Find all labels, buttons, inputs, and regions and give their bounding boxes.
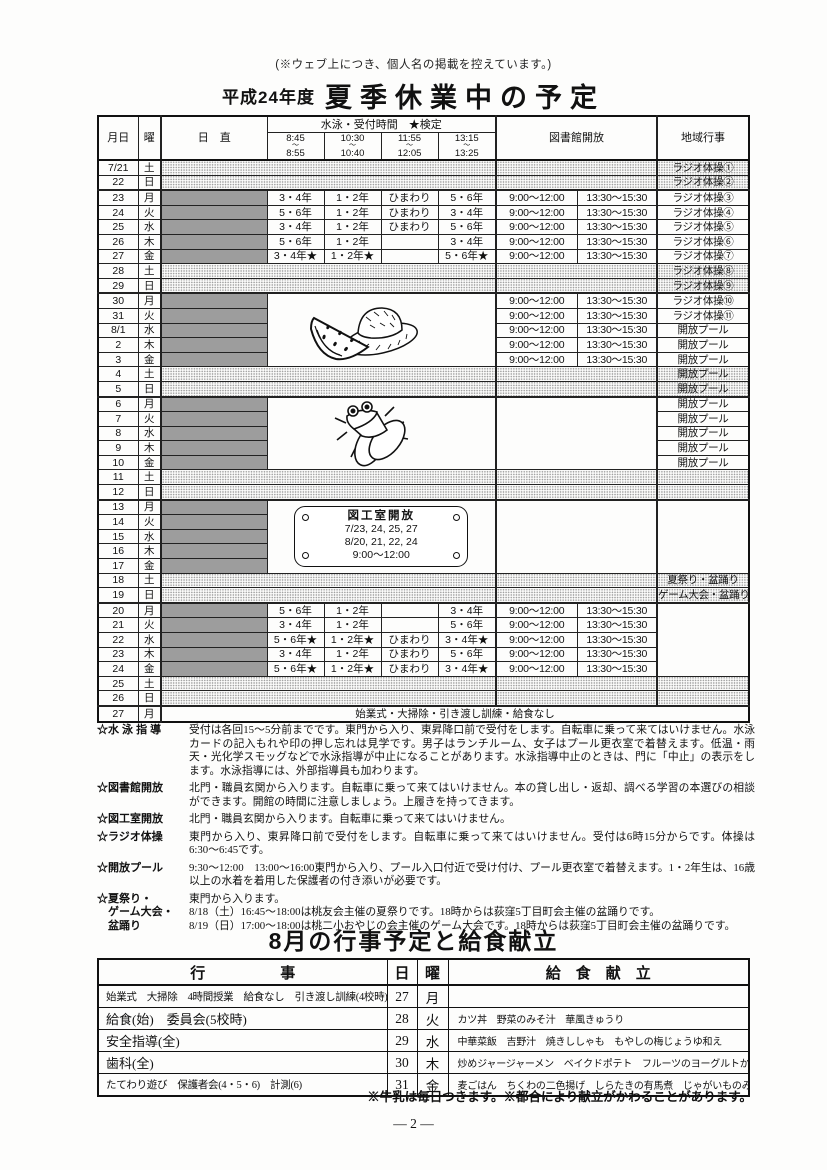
duty-teacher-cell-redacted	[161, 308, 267, 323]
weekend-closed-strip	[496, 175, 657, 190]
region-event-cell: ラジオ体操③	[657, 190, 749, 205]
library-afternoon-cell: 13:30〜15:30	[577, 293, 657, 308]
region-event-cell: ラジオ体操⑨	[657, 278, 749, 293]
day-of-week-cell: 木	[138, 441, 161, 456]
date-cell: 24	[98, 662, 138, 677]
weekend-closed-strip	[496, 381, 657, 396]
col-header-date: 月日	[98, 116, 138, 160]
library-morning-cell: 9:00〜12:00	[496, 647, 577, 662]
note-text: 東門から入り、東昇降口前で受付をします。自転車に乗って来てはいけません。受付は6…	[189, 831, 755, 858]
cicada-drawing	[332, 399, 420, 469]
date-cell: 18	[98, 573, 138, 588]
duty-teacher-cell-redacted	[161, 249, 267, 264]
weekend-closed-strip	[496, 160, 657, 175]
library-morning-cell: 9:00〜12:00	[496, 352, 577, 367]
illustration-cell: 図工室開放 7/23, 24, 25, 27 8/20, 21, 22, 24 …	[267, 500, 496, 573]
library-morning-cell: 9:00〜12:00	[496, 190, 577, 205]
day-of-week-cell: 木	[138, 234, 161, 249]
region-event-cell: 開放プール	[657, 338, 749, 353]
day-of-week-cell: 土	[138, 367, 161, 382]
weekend-closed-strip	[496, 485, 657, 500]
page-title: 平成24年度夏季休業中の予定	[0, 76, 827, 115]
note-text: 北門・職員玄関から入ります。自転車に乗って来てはいけません。本の貸し出し・返却、…	[189, 782, 755, 809]
library-morning-cell: 9:00〜12:00	[496, 220, 577, 235]
note-text: 受付は各回15〜5分前までです。東門から入り、東昇降口前で受付をします。自転車に…	[189, 724, 755, 778]
weekend-closed-strip	[161, 175, 496, 190]
day-of-week-cell: 火	[138, 205, 161, 220]
weekend-closed-strip	[161, 691, 496, 706]
aug-day-cell: 29	[387, 1030, 417, 1052]
library-morning-cell: 9:00〜12:00	[496, 662, 577, 677]
date-cell: 24	[98, 205, 138, 220]
swim-group-cell: ひまわり	[381, 662, 438, 677]
library-afternoon-cell: 13:30〜15:30	[577, 603, 657, 618]
day-of-week-cell: 木	[138, 338, 161, 353]
duty-teacher-cell-redacted	[161, 234, 267, 249]
aug-event-cell: 歯科(全)	[98, 1052, 387, 1074]
sign-line: 9:00〜12:00	[295, 549, 467, 562]
library-morning-cell: 9:00〜12:00	[496, 249, 577, 264]
aug-dow-cell: 月	[417, 985, 448, 1008]
august-events-menu-table: 行 事日曜給 食 献 立始業式 大掃除 4時間授業 給食なし 引き渡し訓練(4校…	[97, 958, 750, 1097]
duty-teacher-cell-redacted	[161, 352, 267, 367]
date-cell: 3	[98, 352, 138, 367]
swim-group-cell: 5・6年	[438, 190, 496, 205]
swim-group-cell: 1・2年	[324, 234, 381, 249]
day-of-week-cell: 金	[138, 249, 161, 264]
aug-col-header-menu: 給 食 献 立	[448, 959, 749, 985]
region-event-cell: 開放プール	[657, 412, 749, 427]
aug-col-header-dow: 曜	[417, 959, 448, 985]
region-event-cell: 開放プール	[657, 441, 749, 456]
summer-schedule-table: 月日曜日 直水泳・受付時間 ★検定図書館開放地域行事8:45〜8:5510:30…	[97, 115, 750, 723]
weekend-closed-strip	[161, 278, 496, 293]
weekend-closed-strip	[161, 381, 496, 396]
swim-group-cell: 1・2年	[324, 190, 381, 205]
full-day-note-cell: 始業式・大掃除・引き渡し訓練・給食なし	[161, 706, 749, 722]
library-afternoon-cell: 13:30〜15:30	[577, 234, 657, 249]
weekend-closed-strip	[496, 573, 657, 588]
swim-group-cell: 1・2年	[324, 647, 381, 662]
region-event-cell	[657, 470, 749, 485]
date-cell: 15	[98, 529, 138, 544]
duty-teacher-cell-redacted	[161, 397, 267, 412]
swim-group-cell: 1・2年	[324, 205, 381, 220]
aug-lunch-menu-cell	[448, 985, 749, 1008]
day-of-week-cell: 木	[138, 544, 161, 559]
swim-slot-time: 10:30〜10:40	[324, 133, 381, 161]
illustration-cell	[267, 293, 496, 366]
date-cell: 31	[98, 308, 138, 323]
duty-teacher-cell-redacted	[161, 529, 267, 544]
duty-teacher-cell-redacted	[161, 603, 267, 618]
date-cell: 25	[98, 220, 138, 235]
day-of-week-cell: 金	[138, 559, 161, 574]
date-cell: 30	[98, 293, 138, 308]
date-cell: 9	[98, 441, 138, 456]
library-afternoon-cell: 13:30〜15:30	[577, 205, 657, 220]
region-event-cell: 開放プール	[657, 352, 749, 367]
day-of-week-cell: 月	[138, 500, 161, 515]
duty-teacher-cell-redacted	[161, 338, 267, 353]
region-event-cell: ラジオ体操⑧	[657, 264, 749, 279]
note-item: ☆水 泳 指 導受付は各回15〜5分前までです。東門から入り、東昇降口前で受付を…	[97, 724, 755, 778]
day-of-week-cell: 土	[138, 470, 161, 485]
weekend-closed-strip	[496, 367, 657, 382]
swim-group-cell: 3・4年	[438, 603, 496, 618]
swim-group-cell: 3・4年	[267, 220, 324, 235]
date-cell: 6	[98, 397, 138, 412]
swim-group-cell: 3・4年	[438, 205, 496, 220]
duty-teacher-cell-redacted	[161, 618, 267, 633]
region-event-cell: 開放プール	[657, 426, 749, 441]
swim-group-cell: 1・2年★	[324, 662, 381, 677]
col-header-library: 図書館開放	[496, 116, 657, 160]
duty-teacher-cell-redacted	[161, 190, 267, 205]
region-event-cell: ラジオ体操⑤	[657, 220, 749, 235]
day-of-week-cell: 金	[138, 352, 161, 367]
region-event-cell	[657, 676, 749, 691]
day-of-week-cell: 日	[138, 691, 161, 706]
duty-teacher-cell-redacted	[161, 544, 267, 559]
date-cell: 19	[98, 588, 138, 603]
note-text: 9:30〜12:00 13:00〜16:00東門から入り、プール入口付近で受け付…	[189, 862, 755, 889]
swim-group-cell	[381, 234, 438, 249]
aug-col-header-day: 日	[387, 959, 417, 985]
date-cell: 17	[98, 559, 138, 574]
region-event-block	[657, 603, 749, 676]
aug-event-cell: 給食(始) 委員会(5校時)	[98, 1008, 387, 1030]
library-morning-cell: 9:00〜12:00	[496, 323, 577, 338]
aug-lunch-menu-cell: カツ丼 野菜のみそ汁 華風きゅうり	[448, 1008, 749, 1030]
date-cell: 26	[98, 234, 138, 249]
swim-group-cell: 3・4年★	[438, 662, 496, 677]
day-of-week-cell: 火	[138, 412, 161, 427]
weekend-closed-strip	[161, 160, 496, 175]
region-event-cell: ラジオ体操⑥	[657, 234, 749, 249]
aug-col-header-events: 行 事	[98, 959, 387, 985]
aug-dow-cell: 火	[417, 1008, 448, 1030]
swim-group-cell: ひまわり	[381, 220, 438, 235]
sign-line: 8/20, 21, 22, 24	[295, 536, 467, 549]
page-number: ― 2 ―	[0, 1116, 827, 1132]
weekend-closed-strip	[161, 676, 496, 691]
scanned-school-newsletter-page: (※ウェブ上につき、個人名の掲載を控えています。) 平成24年度夏季休業中の予定…	[0, 0, 827, 1170]
illustration-cell	[267, 397, 496, 470]
day-of-week-cell: 日	[138, 485, 161, 500]
region-event-cell: ゲーム大会・盆踊り	[657, 588, 749, 603]
swim-group-cell	[381, 603, 438, 618]
swim-group-cell: 3・4年★	[267, 249, 324, 264]
region-event-cell: 開放プール	[657, 397, 749, 412]
library-afternoon-cell: 13:30〜15:30	[577, 618, 657, 633]
date-cell: 11	[98, 470, 138, 485]
library-afternoon-cell: 13:30〜15:30	[577, 323, 657, 338]
col-header-duty: 日 直	[161, 116, 267, 160]
duty-teacher-cell-redacted	[161, 293, 267, 308]
date-cell: 13	[98, 500, 138, 515]
library-morning-cell: 9:00〜12:00	[496, 308, 577, 323]
library-closed-block	[496, 397, 657, 470]
day-of-week-cell: 土	[138, 160, 161, 175]
date-cell: 21	[98, 618, 138, 633]
swim-group-cell: 1・2年	[324, 618, 381, 633]
swim-group-cell: ひまわり	[381, 205, 438, 220]
swim-group-cell: 5・6年★	[438, 249, 496, 264]
day-of-week-cell: 火	[138, 618, 161, 633]
duty-teacher-cell-redacted	[161, 559, 267, 574]
day-of-week-cell: 水	[138, 323, 161, 338]
note-item: ☆ラジオ体操東門から入り、東昇降口前で受付をします。自転車に乗って来てはいけませ…	[97, 831, 755, 858]
duty-teacher-cell-redacted	[161, 515, 267, 530]
library-morning-cell: 9:00〜12:00	[496, 338, 577, 353]
duty-teacher-cell-redacted	[161, 455, 267, 470]
date-cell: 27	[98, 706, 138, 722]
weekend-closed-strip	[496, 264, 657, 279]
sign-line: 7/23, 24, 25, 27	[295, 523, 467, 536]
swim-group-cell: 5・6年★	[267, 662, 324, 677]
library-afternoon-cell: 13:30〜15:30	[577, 190, 657, 205]
library-morning-cell: 9:00〜12:00	[496, 603, 577, 618]
date-cell: 4	[98, 367, 138, 382]
weekend-closed-strip	[496, 278, 657, 293]
aug-lunch-menu-cell: 炒めジャージャーメン ベイクドポテト フルーツのヨーグルトかけ	[448, 1052, 749, 1074]
library-afternoon-cell: 13:30〜15:30	[577, 249, 657, 264]
date-cell: 8/1	[98, 323, 138, 338]
library-morning-cell: 9:00〜12:00	[496, 618, 577, 633]
swim-group-cell: 5・6年★	[267, 633, 324, 648]
note-item: ☆開放プール9:30〜12:00 13:00〜16:00東門から入り、プール入口…	[97, 862, 755, 889]
note-item: ☆図工室開放北門・職員玄関から入ります。自転車に乗って来てはいけません。	[97, 813, 755, 827]
aug-dow-cell: 水	[417, 1030, 448, 1052]
day-of-week-cell: 月	[138, 603, 161, 618]
date-cell: 27	[98, 249, 138, 264]
swim-group-cell: 3・4年	[267, 647, 324, 662]
date-cell: 26	[98, 691, 138, 706]
note-text: 北門・職員玄関から入ります。自転車に乗って来てはいけません。	[189, 813, 755, 827]
day-of-week-cell: 日	[138, 175, 161, 190]
aug-day-cell: 30	[387, 1052, 417, 1074]
note-label: ☆開放プール	[97, 862, 189, 889]
swim-group-cell: ひまわり	[381, 633, 438, 648]
region-event-cell: ラジオ体操④	[657, 205, 749, 220]
day-of-week-cell: 土	[138, 264, 161, 279]
swim-group-cell: 3・4年	[438, 234, 496, 249]
august-section-title: 8月の行事予定と給食献立	[0, 922, 827, 956]
day-of-week-cell: 日	[138, 588, 161, 603]
region-event-cell	[657, 691, 749, 706]
region-event-cell: 夏祭り・盆踊り	[657, 573, 749, 588]
library-afternoon-cell: 13:30〜15:30	[577, 220, 657, 235]
swim-group-cell: 3・4年	[267, 190, 324, 205]
day-of-week-cell: 日	[138, 278, 161, 293]
duty-teacher-cell-redacted	[161, 662, 267, 677]
swim-group-cell: 1・2年	[324, 603, 381, 618]
day-of-week-cell: 金	[138, 455, 161, 470]
date-cell: 12	[98, 485, 138, 500]
aug-day-cell: 27	[387, 985, 417, 1008]
weekend-closed-strip	[161, 367, 496, 382]
swim-group-cell: 1・2年★	[324, 249, 381, 264]
day-of-week-cell: 日	[138, 381, 161, 396]
day-of-week-cell: 水	[138, 426, 161, 441]
region-event-cell	[657, 485, 749, 500]
date-cell: 22	[98, 633, 138, 648]
library-afternoon-cell: 13:30〜15:30	[577, 647, 657, 662]
col-header-swim-times: 水泳・受付時間 ★検定	[267, 116, 496, 133]
col-header-day-of-week: 曜	[138, 116, 161, 160]
duty-teacher-cell-redacted	[161, 205, 267, 220]
note-label: ☆図書館開放	[97, 782, 189, 809]
date-cell: 8	[98, 426, 138, 441]
swim-slot-time: 8:45〜8:55	[267, 133, 324, 161]
region-event-cell: 開放プール	[657, 455, 749, 470]
date-cell: 14	[98, 515, 138, 530]
library-morning-cell: 9:00〜12:00	[496, 205, 577, 220]
day-of-week-cell: 月	[138, 293, 161, 308]
library-closed-block	[496, 500, 657, 573]
region-event-cell: ラジオ体操⑦	[657, 249, 749, 264]
region-event-cell: 開放プール	[657, 323, 749, 338]
date-cell: 5	[98, 381, 138, 396]
duty-teacher-cell-redacted	[161, 412, 267, 427]
swim-group-cell: 5・6年	[438, 618, 496, 633]
weekend-closed-strip	[496, 470, 657, 485]
date-cell: 29	[98, 278, 138, 293]
region-event-cell: ラジオ体操⑩	[657, 293, 749, 308]
privacy-note: (※ウェブ上につき、個人名の掲載を控えています。)	[0, 56, 827, 72]
milk-footnote: ※牛乳は毎日つきます。※都合により献立がかわることがあります。	[97, 1086, 752, 1105]
weekend-closed-strip	[161, 588, 496, 603]
swim-group-cell: ひまわり	[381, 647, 438, 662]
region-event-block	[657, 500, 749, 573]
weekend-closed-strip	[496, 676, 657, 691]
library-afternoon-cell: 13:30〜15:30	[577, 352, 657, 367]
weekend-closed-strip	[161, 470, 496, 485]
swim-group-cell: 5・6年	[438, 647, 496, 662]
swim-group-cell: ひまわり	[381, 190, 438, 205]
date-cell: 28	[98, 264, 138, 279]
day-of-week-cell: 金	[138, 662, 161, 677]
note-label: ☆図工室開放	[97, 813, 189, 827]
duty-teacher-cell-redacted	[161, 323, 267, 338]
day-of-week-cell: 木	[138, 647, 161, 662]
weekend-closed-strip	[496, 691, 657, 706]
aug-event-cell: 安全指導(全)	[98, 1030, 387, 1052]
duty-teacher-cell-redacted	[161, 633, 267, 648]
swim-group-cell: 1・2年★	[324, 633, 381, 648]
day-of-week-cell: 水	[138, 529, 161, 544]
library-morning-cell: 9:00〜12:00	[496, 293, 577, 308]
duty-teacher-cell-redacted	[161, 426, 267, 441]
date-cell: 25	[98, 676, 138, 691]
school-year-label: 平成24年度	[222, 88, 315, 107]
day-of-week-cell: 水	[138, 633, 161, 648]
date-cell: 20	[98, 603, 138, 618]
day-of-week-cell: 月	[138, 706, 161, 722]
swim-group-cell	[381, 618, 438, 633]
weekend-closed-strip	[161, 485, 496, 500]
region-event-cell: ラジオ体操①	[657, 160, 749, 175]
watermelon-and-straw-hat-drawing	[302, 297, 424, 365]
library-morning-cell: 9:00〜12:00	[496, 633, 577, 648]
duty-teacher-cell-redacted	[161, 647, 267, 662]
swim-group-cell: 3・4年★	[438, 633, 496, 648]
notes-section: ☆水 泳 指 導受付は各回15〜5分前までです。東門から入り、東昇降口前で受付を…	[97, 724, 755, 937]
day-of-week-cell: 土	[138, 573, 161, 588]
note-label: ☆ラジオ体操	[97, 831, 189, 858]
day-of-week-cell: 土	[138, 676, 161, 691]
aug-day-cell: 28	[387, 1008, 417, 1030]
day-of-week-cell: 火	[138, 308, 161, 323]
note-label: ☆水 泳 指 導	[97, 724, 189, 778]
swim-group-cell: 3・4年	[267, 618, 324, 633]
date-cell: 23	[98, 647, 138, 662]
date-cell: 16	[98, 544, 138, 559]
library-afternoon-cell: 13:30〜15:30	[577, 633, 657, 648]
day-of-week-cell: 月	[138, 190, 161, 205]
day-of-week-cell: 火	[138, 515, 161, 530]
library-afternoon-cell: 13:30〜15:30	[577, 338, 657, 353]
weekend-closed-strip	[161, 264, 496, 279]
swim-slot-time: 11:55〜12:05	[381, 133, 438, 161]
region-event-cell: ラジオ体操②	[657, 175, 749, 190]
date-cell: 22	[98, 175, 138, 190]
swim-group-cell: 5・6年	[438, 220, 496, 235]
date-cell: 7	[98, 412, 138, 427]
duty-teacher-cell-redacted	[161, 500, 267, 515]
date-cell: 7/21	[98, 160, 138, 175]
library-morning-cell: 9:00〜12:00	[496, 234, 577, 249]
region-event-cell: ラジオ体操⑪	[657, 308, 749, 323]
col-header-region-events: 地域行事	[657, 116, 749, 160]
region-event-cell: 開放プール	[657, 367, 749, 382]
swim-group-cell: 5・6年	[267, 603, 324, 618]
date-cell: 2	[98, 338, 138, 353]
duty-teacher-cell-redacted	[161, 441, 267, 456]
weekend-closed-strip	[161, 573, 496, 588]
swim-group-cell: 5・6年	[267, 234, 324, 249]
note-item: ☆図書館開放北門・職員玄関から入ります。自転車に乗って来てはいけません。本の貸し…	[97, 782, 755, 809]
date-cell: 23	[98, 190, 138, 205]
library-afternoon-cell: 13:30〜15:30	[577, 308, 657, 323]
swim-group-cell	[381, 249, 438, 264]
weekend-closed-strip	[496, 588, 657, 603]
day-of-week-cell: 月	[138, 397, 161, 412]
aug-lunch-menu-cell: 中華菜飯 吉野汁 焼きししゃも もやしの梅じょうゆ和え	[448, 1030, 749, 1052]
library-afternoon-cell: 13:30〜15:30	[577, 662, 657, 677]
sign-title: 図工室開放	[295, 510, 467, 523]
aug-event-cell: 始業式 大掃除 4時間授業 給食なし 引き渡し訓練(4校時)	[98, 985, 387, 1008]
aug-dow-cell: 木	[417, 1052, 448, 1074]
craft-room-open-signboard: 図工室開放 7/23, 24, 25, 27 8/20, 21, 22, 24 …	[294, 506, 468, 567]
swim-slot-time: 13:15〜13:25	[438, 133, 496, 161]
duty-teacher-cell-redacted	[161, 220, 267, 235]
title-text: 夏季休業中の予定	[325, 83, 605, 113]
date-cell: 10	[98, 455, 138, 470]
day-of-week-cell: 水	[138, 220, 161, 235]
swim-group-cell: 5・6年	[267, 205, 324, 220]
region-event-cell: 開放プール	[657, 381, 749, 396]
swim-group-cell: 1・2年	[324, 220, 381, 235]
